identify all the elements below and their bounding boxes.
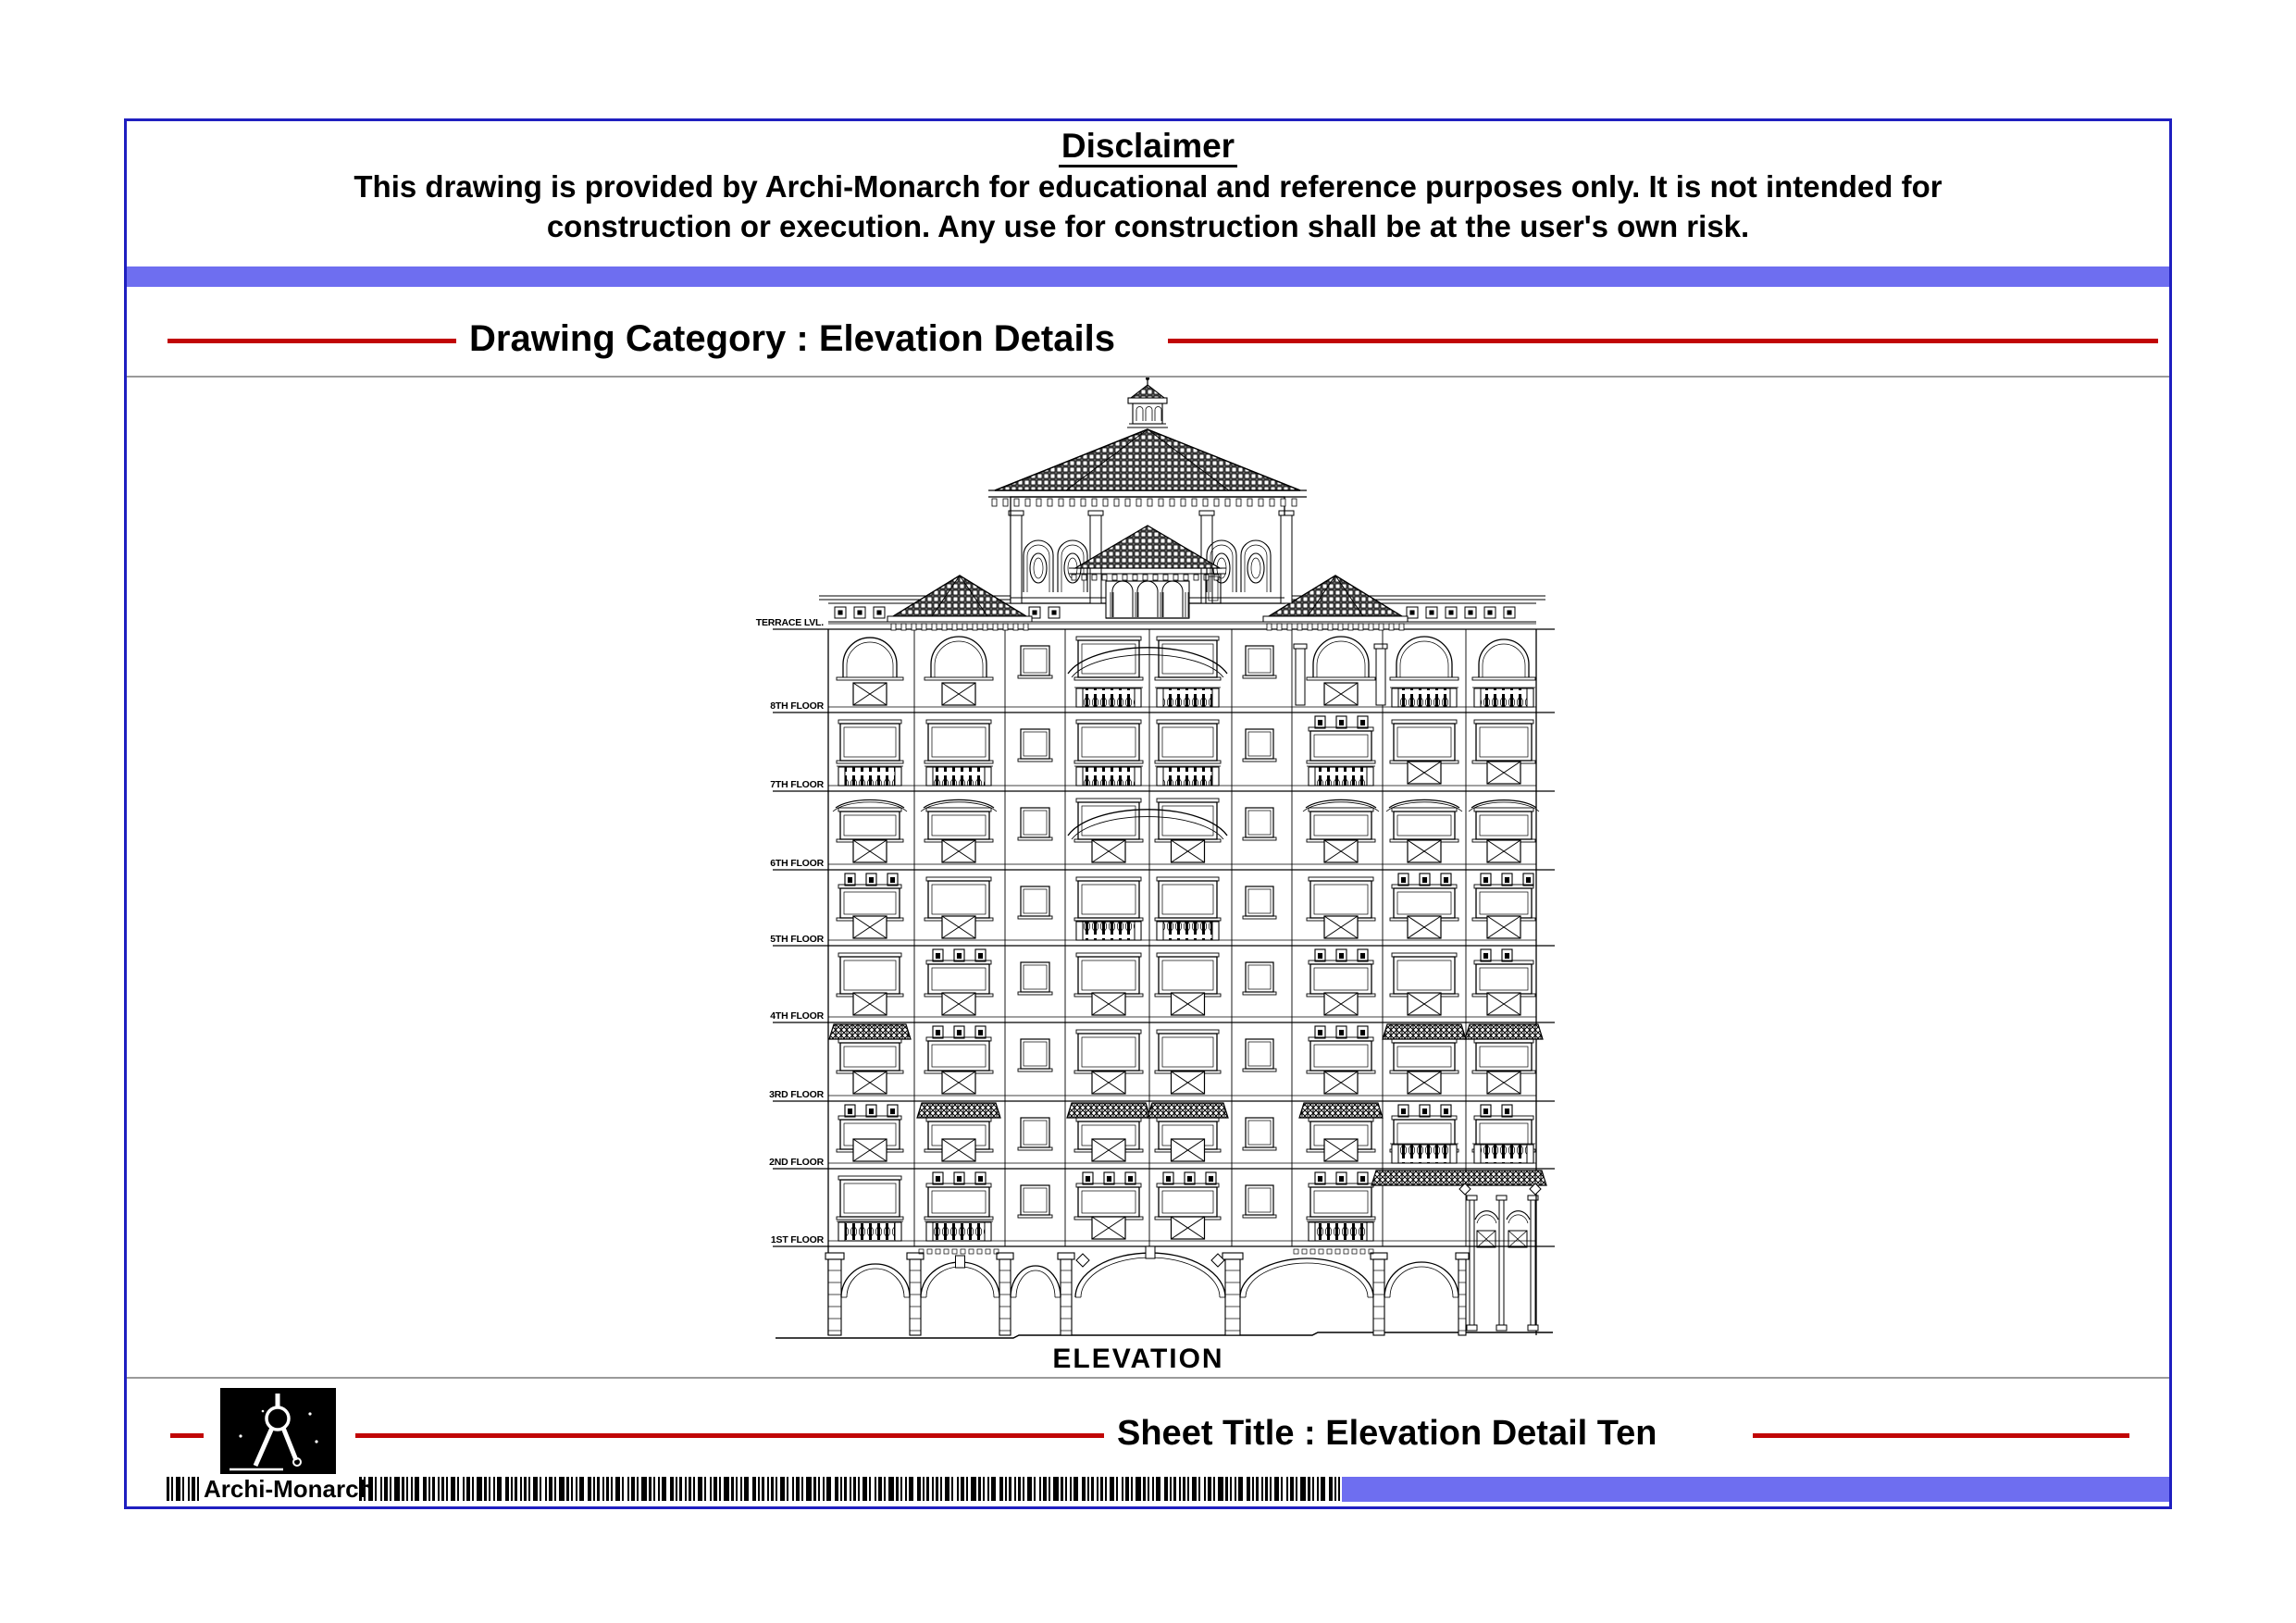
disclaimer-line1: This drawing is provided by Archi-Monarc… xyxy=(127,169,2169,204)
category-rule-left xyxy=(168,339,456,343)
compass-icon xyxy=(220,1388,336,1474)
sheet-title: Sheet Title : Elevation Detail Ten xyxy=(1117,1414,1657,1454)
svg-text:2ND FLOOR: 2ND FLOOR xyxy=(769,1157,824,1168)
svg-text:TERRACE LVL.: TERRACE LVL. xyxy=(756,617,825,628)
page-border-frame: Disclaimer This drawing is provided by A… xyxy=(124,118,2172,1509)
elevation-caption: ELEVATION xyxy=(1052,1344,1223,1374)
svg-text:4TH FLOOR: 4TH FLOOR xyxy=(770,1010,824,1022)
sheet-title-rule-dash xyxy=(170,1433,204,1438)
facade-windows xyxy=(829,637,1546,1241)
disclaimer-title: Disclaimer xyxy=(127,127,2169,166)
disclaimer-line2: construction or execution. Any use for c… xyxy=(127,209,2169,244)
barcode-brand-text: Archi-Monarch xyxy=(204,1477,373,1501)
footer-fill-bar xyxy=(1342,1477,2169,1502)
svg-text:6TH FLOOR: 6TH FLOOR xyxy=(770,858,824,869)
ground-arcade xyxy=(825,1183,1541,1335)
svg-text:7TH FLOOR: 7TH FLOOR xyxy=(770,779,824,790)
drawing-category-title: Drawing Category : Elevation Details xyxy=(469,318,1115,360)
barcode: Archi-Monarch xyxy=(167,1477,1340,1501)
archi-monarch-logo xyxy=(220,1388,336,1474)
barcode-bars-left xyxy=(167,1477,200,1501)
sheet-title-rule-right xyxy=(1753,1433,2129,1438)
section-divider-bottom xyxy=(127,1377,2169,1379)
svg-text:1ST FLOOR: 1ST FLOOR xyxy=(771,1234,825,1245)
header-divider-bar xyxy=(127,266,2169,287)
elevation-drawing: TERRACE LVL.8TH FLOOR7TH FLOOR6TH FLOOR5… xyxy=(127,378,2169,1377)
svg-text:3RD FLOOR: 3RD FLOOR xyxy=(769,1089,824,1100)
svg-text:8TH FLOOR: 8TH FLOOR xyxy=(770,700,824,712)
sheet-title-rule-left xyxy=(355,1433,1104,1438)
barcode-bars-right xyxy=(359,1477,1340,1501)
category-rule-right xyxy=(1168,339,2158,343)
svg-text:5TH FLOOR: 5TH FLOOR xyxy=(770,934,824,945)
tower xyxy=(988,378,1307,618)
